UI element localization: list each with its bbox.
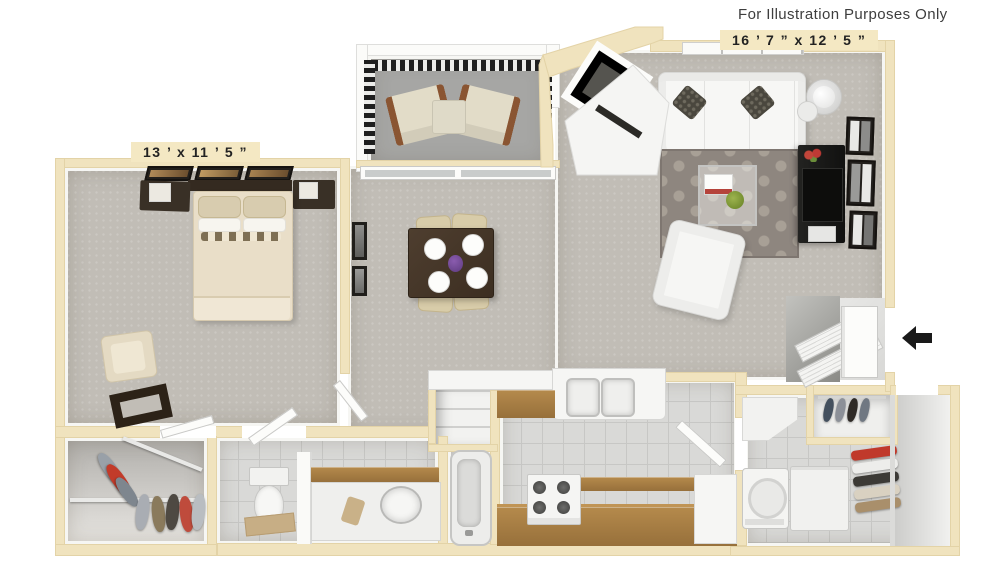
vanity-sink <box>380 486 422 524</box>
living-room-dimensions-label: 16 ’ 7 ” x 12 ’ 5 ” <box>720 30 878 50</box>
linen-closet-left-wall <box>428 382 436 444</box>
lamp-side-table <box>797 101 818 122</box>
lamp-right <box>299 182 318 199</box>
bedroom-wall-art-1 <box>144 166 194 181</box>
bed-accent-pillows <box>201 232 281 241</box>
laundry-right-wall <box>950 385 960 556</box>
entry-closet-divider <box>890 395 895 546</box>
dinner-plate-4 <box>466 267 488 289</box>
kitchen-mid-counter <box>575 477 695 491</box>
vanity-backsplash <box>311 467 439 482</box>
closet-bottom-wall <box>55 544 217 556</box>
bedroom-armchair-cushion <box>110 340 146 374</box>
kitchen-sink-right <box>601 378 635 417</box>
coffee-table-plant <box>726 191 744 209</box>
bedroom-dimensions-label: 13 ’ x 11 ’ 5 ” <box>131 142 260 162</box>
dryer <box>790 466 849 531</box>
art-pane <box>852 215 862 245</box>
passthrough-counter <box>497 390 555 418</box>
bed-pillow-shams-right <box>243 196 286 218</box>
art-print <box>149 170 189 177</box>
corner-fireplace <box>537 25 687 195</box>
bed-foot-fold <box>194 296 290 320</box>
kitchen-counter-band <box>428 370 556 390</box>
stove-burner <box>557 501 570 514</box>
dinner-plate-2 <box>462 234 484 256</box>
kitchen-top-wall <box>660 372 745 382</box>
stove-burner <box>557 481 570 494</box>
washer-door-ring <box>748 478 787 519</box>
toilet-tank <box>249 467 289 486</box>
disclaimer-text: For Illustration Purposes Only <box>738 6 948 23</box>
dinner-plate-3 <box>428 271 450 293</box>
living-wall-art-1 <box>845 117 874 156</box>
washer <box>742 468 789 529</box>
stove <box>527 474 581 525</box>
table-centerpiece <box>448 255 463 272</box>
balcony-top-wall <box>356 44 560 56</box>
washer-control-panel <box>745 519 784 525</box>
headboard <box>188 180 292 191</box>
closet-bath-divider-wall <box>207 436 217 546</box>
bathtub-basin <box>457 459 481 527</box>
vanity-counter <box>311 482 441 541</box>
living-right-wall <box>885 40 895 308</box>
entry-arrow-icon <box>902 325 932 351</box>
floor-plan: For Illustration Purposes Only 16 ’ 7 ” … <box>0 0 1000 583</box>
hall-wall-art-2 <box>352 266 367 296</box>
bed-pillow-left <box>198 218 241 232</box>
bathtub <box>450 450 492 546</box>
balcony-sliding-door <box>360 166 556 180</box>
hall-wall-art-1 <box>352 222 367 260</box>
tv-speaker <box>808 226 836 242</box>
bath-partition <box>297 452 312 544</box>
tv-flowers <box>803 148 822 162</box>
laundry-closet-left-wall <box>806 385 814 445</box>
bedroom-armchair <box>100 330 158 384</box>
laundry-closet-bottom-wall <box>806 437 898 445</box>
laundry-bottom-wall <box>730 546 960 556</box>
bedroom-wall-art-2 <box>194 166 244 181</box>
bed-pillow-shams-left <box>198 196 241 218</box>
entry-closet-floor <box>890 395 950 546</box>
sliding-door-glass-left <box>365 170 455 177</box>
entry-closet-opening <box>896 385 938 395</box>
balcony-railing-left <box>364 60 375 154</box>
living-wall-art-2 <box>846 160 876 207</box>
art-print <box>199 170 239 177</box>
west-exterior-wall <box>55 158 65 556</box>
dinner-plate-1 <box>424 238 446 260</box>
bed <box>193 191 293 321</box>
balcony-railing-top <box>364 60 552 71</box>
tv-screen <box>802 168 843 222</box>
living-wall-art-3 <box>848 211 877 250</box>
art-pane <box>863 215 873 245</box>
art-pane <box>860 121 870 151</box>
stove-burner <box>533 501 546 514</box>
bed-pillow-right <box>243 218 286 232</box>
art-print <box>249 170 289 177</box>
art-pane <box>849 121 859 151</box>
stove-burner <box>533 481 546 494</box>
kitchen-sink-left <box>566 378 600 417</box>
bedroom-wall-art-3 <box>244 166 294 181</box>
art-pane <box>850 164 860 202</box>
art-pane <box>861 164 871 202</box>
balcony-table <box>432 100 466 134</box>
bedroom-hall-wall <box>340 158 350 374</box>
lamp-left <box>149 183 171 202</box>
entry-door <box>841 306 878 378</box>
kitchen-corner-cabinet <box>694 474 737 544</box>
bathtub-faucet <box>465 530 473 536</box>
